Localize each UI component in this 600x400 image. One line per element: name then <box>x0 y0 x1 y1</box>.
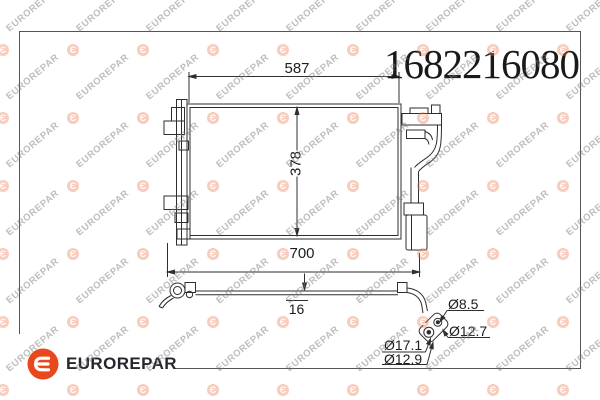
dimension-width-top-label: 587 <box>277 61 317 76</box>
diameter-17-1-label: Ø17.1 <box>384 338 422 352</box>
dimension-pipe-offset-label: 16 <box>283 302 310 316</box>
dimension-width-overall-label: 700 <box>282 246 322 261</box>
right-bracket-receiver-drier <box>402 105 442 250</box>
diameter-12-9-label: Ø12.9 <box>384 352 422 366</box>
eurorepar-logo: EUROREPAR <box>27 348 177 380</box>
dimension-height-label: 378 <box>289 151 304 177</box>
part-number: 1682216080 <box>380 44 579 85</box>
eurorepar-logo-text: EUROREPAR <box>66 354 177 374</box>
diameter-12-7-label: Ø12.7 <box>449 324 487 338</box>
diameter-8-5-label: Ø8.5 <box>448 297 478 311</box>
dimension-16-lines <box>286 274 308 301</box>
eurorepar-emblem-icon <box>27 348 59 380</box>
product-image: 587 378 700 16 Ø8.5 Ø12.7 Ø17.1 Ø12.9 16… <box>0 0 600 400</box>
